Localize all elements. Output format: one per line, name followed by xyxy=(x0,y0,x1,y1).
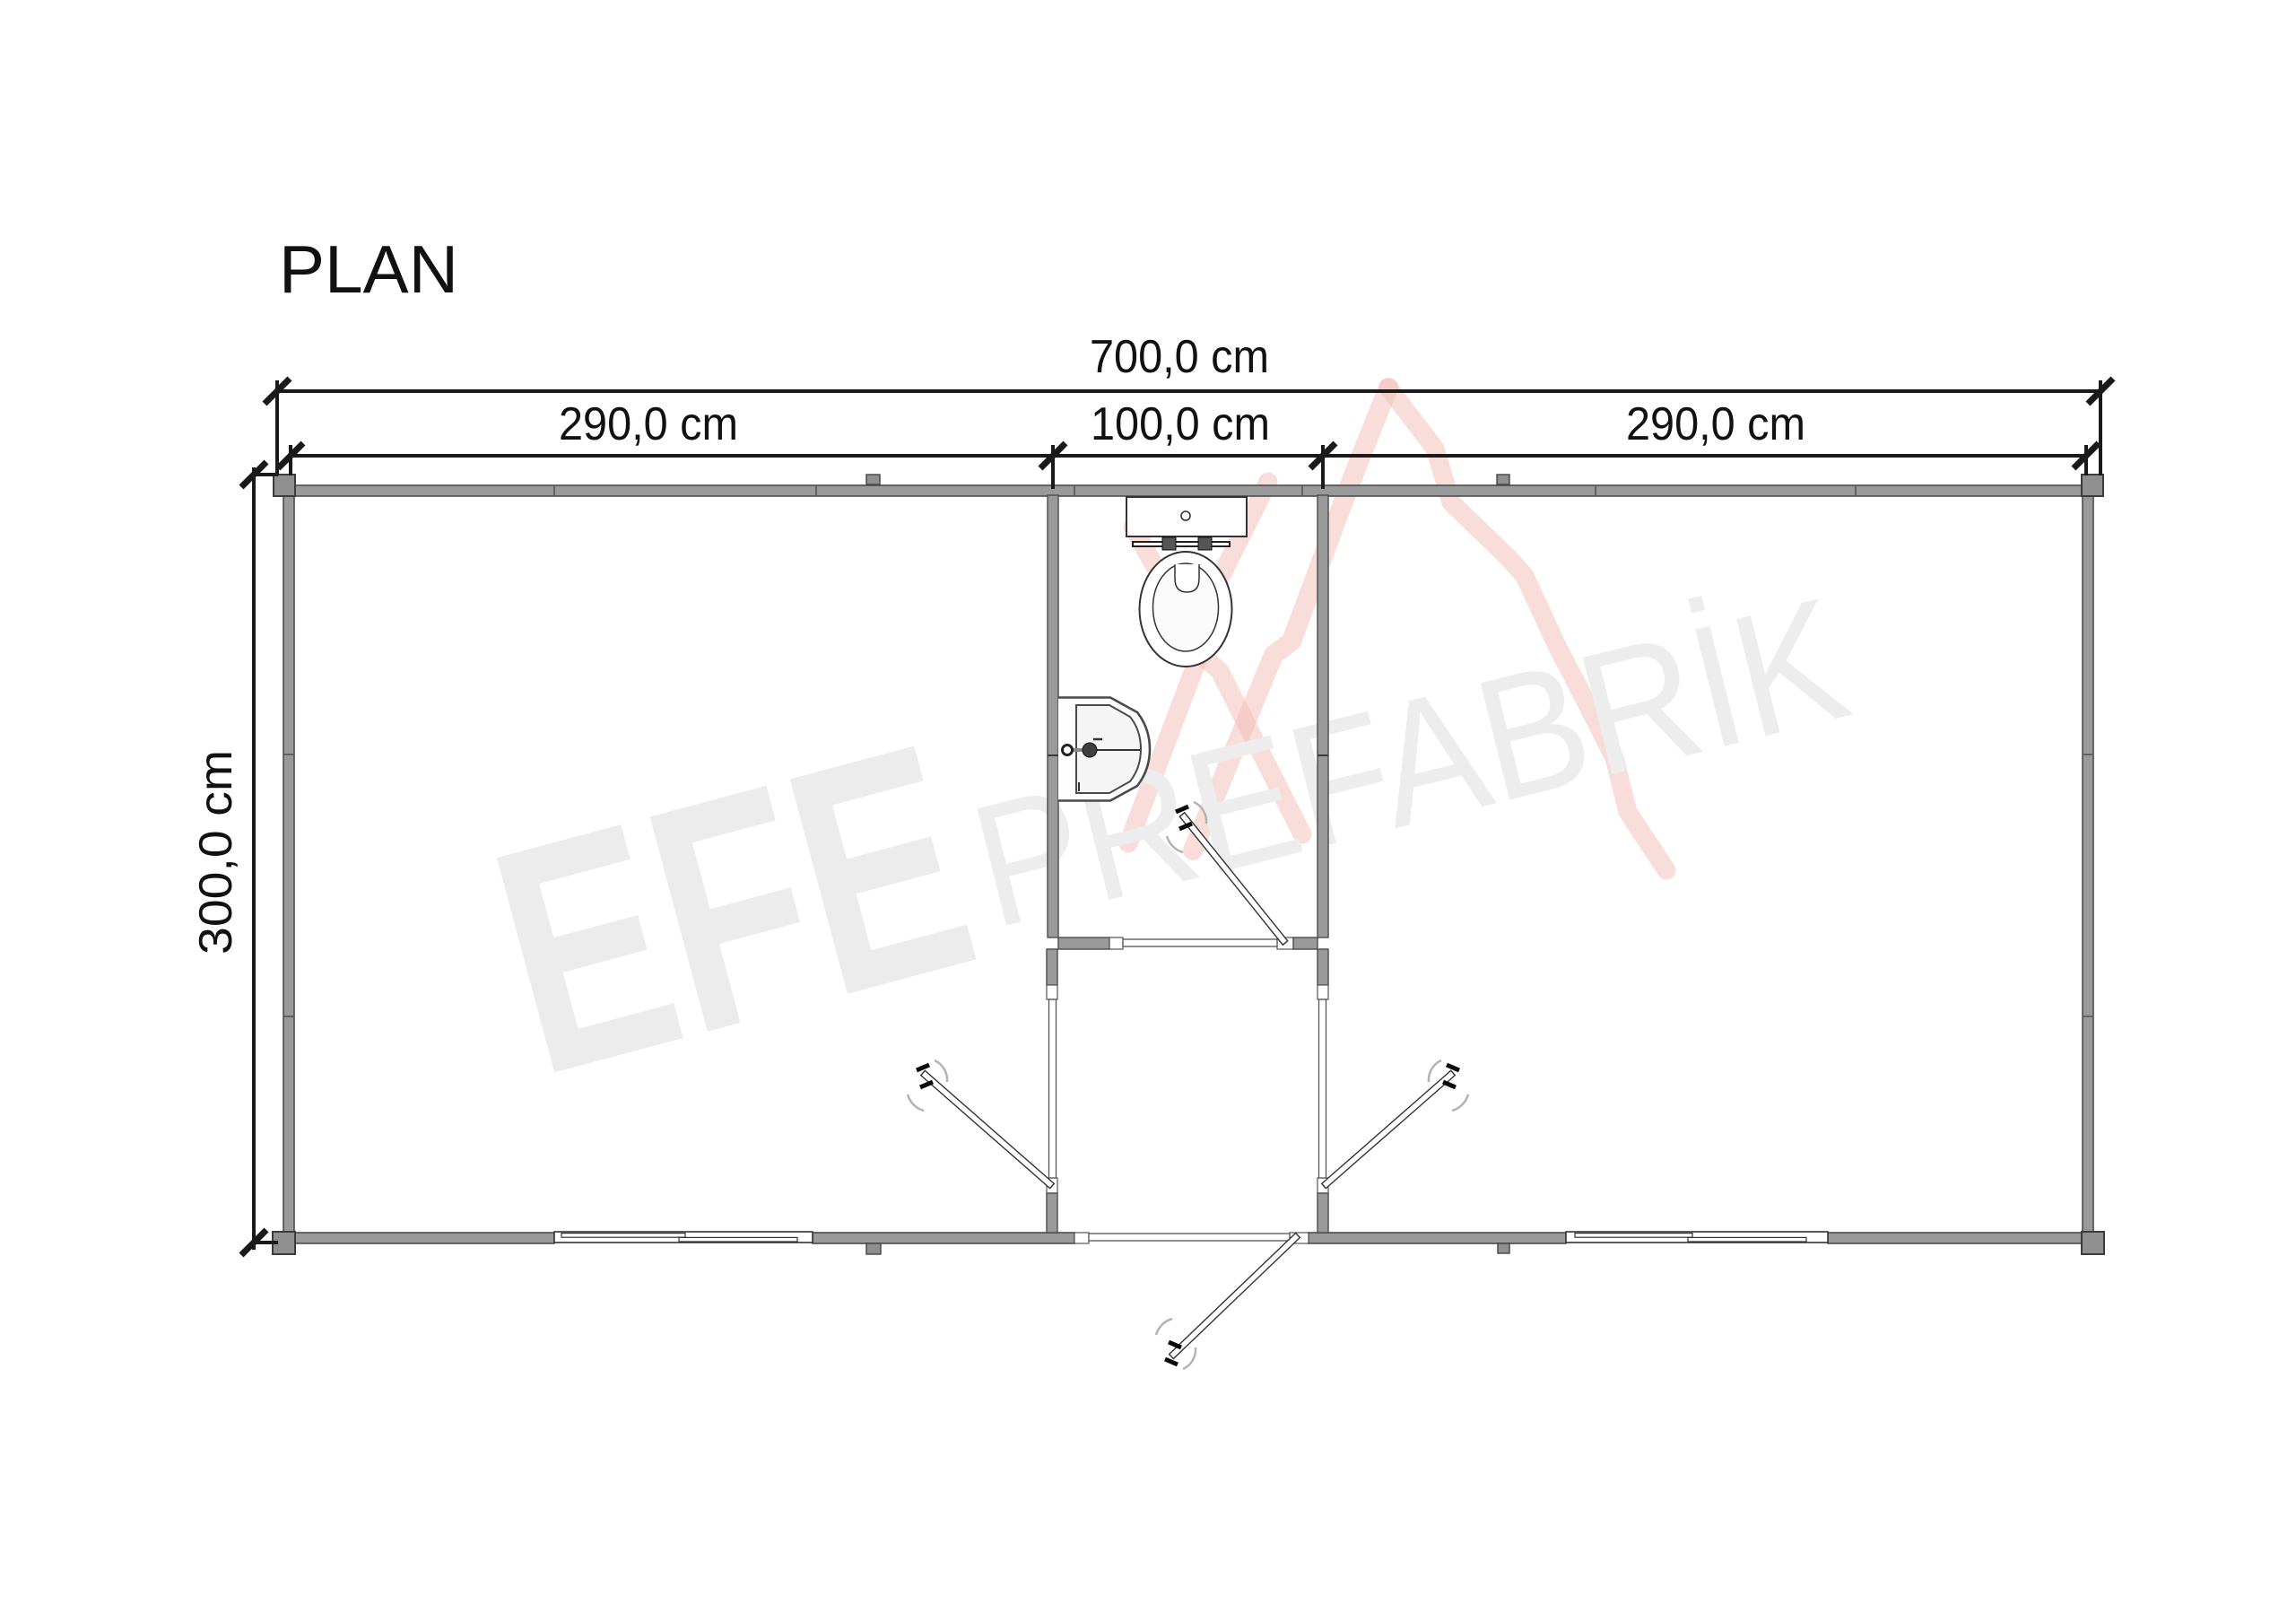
svg-text:PLAN: PLAN xyxy=(279,231,458,307)
svg-text:100,0 cm: 100,0 cm xyxy=(1091,398,1270,450)
svg-text:300,0 cm: 300,0 cm xyxy=(190,750,242,955)
svg-text:700,0 cm: 700,0 cm xyxy=(1090,331,1269,383)
svg-text:290,0 cm: 290,0 cm xyxy=(559,398,738,450)
svg-text:290,0 cm: 290,0 cm xyxy=(1626,398,1805,450)
